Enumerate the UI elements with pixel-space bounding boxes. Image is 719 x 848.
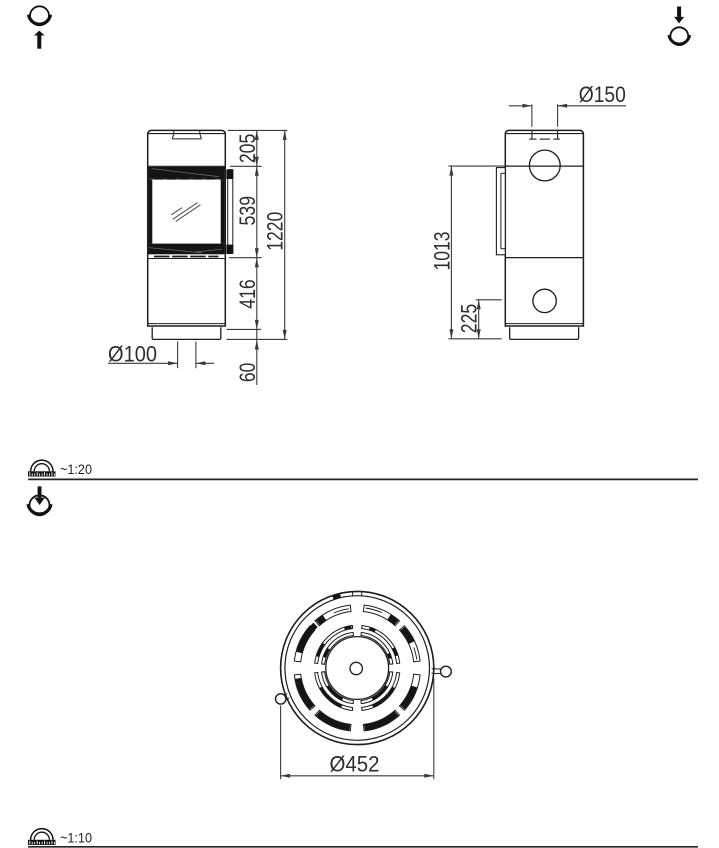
svg-text:1220: 1220 <box>263 212 288 251</box>
svg-text:416: 416 <box>235 279 260 309</box>
svg-text:Ø150: Ø150 <box>579 82 626 107</box>
svg-text:225: 225 <box>457 304 482 334</box>
svg-text:~1:10: ~1:10 <box>60 829 92 845</box>
svg-text:60: 60 <box>235 363 260 383</box>
svg-text:~1:20: ~1:20 <box>60 461 92 477</box>
svg-text:1013: 1013 <box>429 232 454 271</box>
svg-text:Ø100: Ø100 <box>108 342 157 367</box>
svg-text:539: 539 <box>235 196 260 226</box>
svg-text:205: 205 <box>235 134 260 164</box>
svg-text:Ø452: Ø452 <box>330 752 380 777</box>
